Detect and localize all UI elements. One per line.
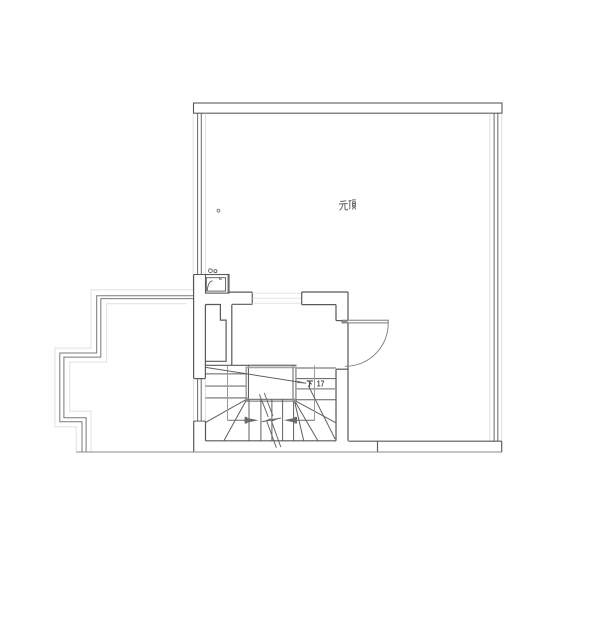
svg-text:17: 17: [317, 379, 325, 389]
